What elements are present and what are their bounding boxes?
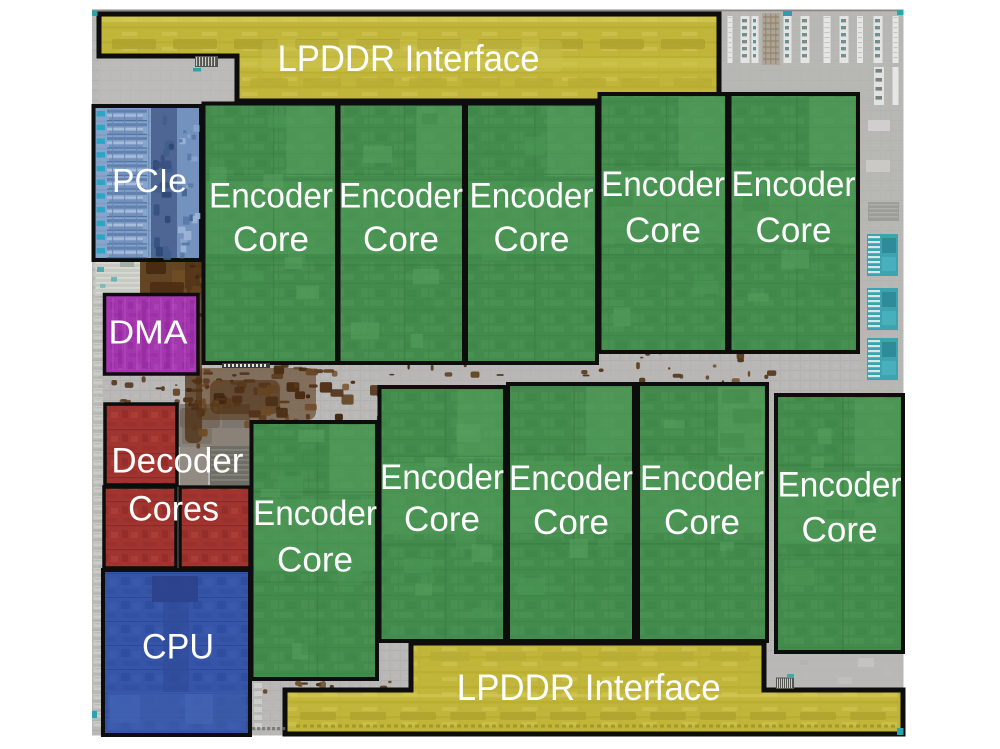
svg-text:Encoder: Encoder [732, 165, 856, 204]
svg-text:Core: Core [494, 220, 570, 259]
svg-text:Decoder: Decoder [111, 441, 243, 480]
svg-text:Core: Core [363, 220, 439, 259]
svg-text:Core: Core [664, 503, 740, 542]
svg-text:Encoder: Encoder [470, 176, 594, 215]
svg-text:Core: Core [533, 503, 609, 542]
svg-text:Encoder: Encoder [209, 176, 333, 215]
svg-text:Encoder: Encoder [339, 176, 463, 215]
svg-text:Encoder: Encoder [640, 459, 764, 498]
svg-text:Core: Core [233, 220, 309, 259]
svg-text:Encoder: Encoder [380, 458, 504, 497]
svg-text:Encoder: Encoder [778, 466, 902, 505]
svg-text:Core: Core [404, 500, 480, 539]
svg-text:Core: Core [277, 540, 353, 579]
svg-text:LPDDR Interface: LPDDR Interface [457, 667, 721, 708]
svg-text:LPDDR Interface: LPDDR Interface [278, 38, 540, 79]
svg-text:Core: Core [625, 211, 701, 250]
svg-text:Encoder: Encoder [601, 165, 725, 204]
svg-text:DMA: DMA [109, 314, 188, 351]
svg-text:CPU: CPU [142, 628, 214, 667]
svg-text:PCIe: PCIe [112, 162, 187, 199]
svg-text:Core: Core [756, 211, 832, 250]
svg-text:Core: Core [802, 511, 878, 550]
svg-text:Cores: Cores [128, 489, 219, 528]
svg-text:Encoder: Encoder [509, 459, 633, 498]
svg-text:Encoder: Encoder [253, 494, 377, 533]
